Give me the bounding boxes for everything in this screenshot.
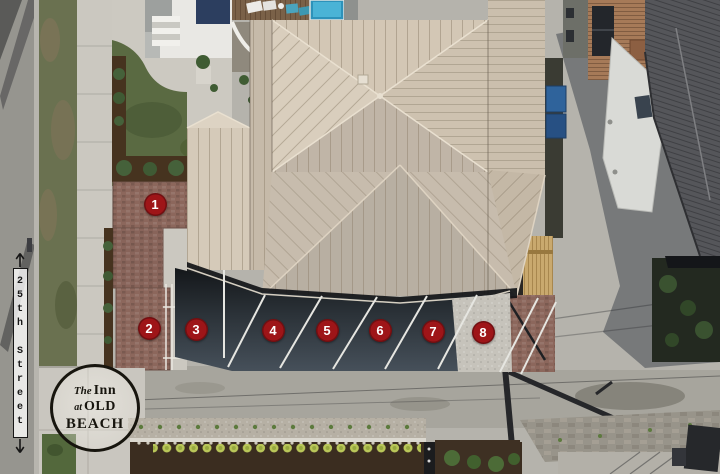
parking-marker-3: 3 (185, 318, 208, 341)
parking-marker-8: 8 (472, 321, 495, 344)
street-name: 25th Street (15, 276, 26, 430)
aerial-parking-map: 25th Street 12345678 The Inn at OLD BEAC… (0, 0, 720, 474)
grass-verge (39, 0, 77, 430)
parking-marker-6: 6 (369, 319, 392, 342)
logo-line-2: at OLD (74, 399, 116, 415)
parking-marker-2: 2 (138, 317, 161, 340)
logo-line-1: The Inn (74, 383, 116, 399)
parking-marker-4: 4 (262, 319, 285, 342)
arrow-up-icon (14, 253, 26, 267)
inn-logo: The Inn at OLD BEACH (50, 364, 140, 452)
logo-word-old: OLD (84, 399, 116, 415)
parking-marker-5: 5 (316, 319, 339, 342)
logo-word-at: at (74, 402, 82, 413)
logo-word-beach: BEACH (66, 416, 124, 433)
arrow-down-icon (14, 439, 26, 453)
parking-marker-1: 1 (144, 193, 167, 216)
street-label-box: 25th Street (13, 268, 28, 438)
parking-marker-7: 7 (422, 320, 445, 343)
logo-word-inn: Inn (94, 383, 117, 399)
street-label: 25th Street (6, 253, 34, 453)
logo-word-the: The (74, 385, 92, 397)
